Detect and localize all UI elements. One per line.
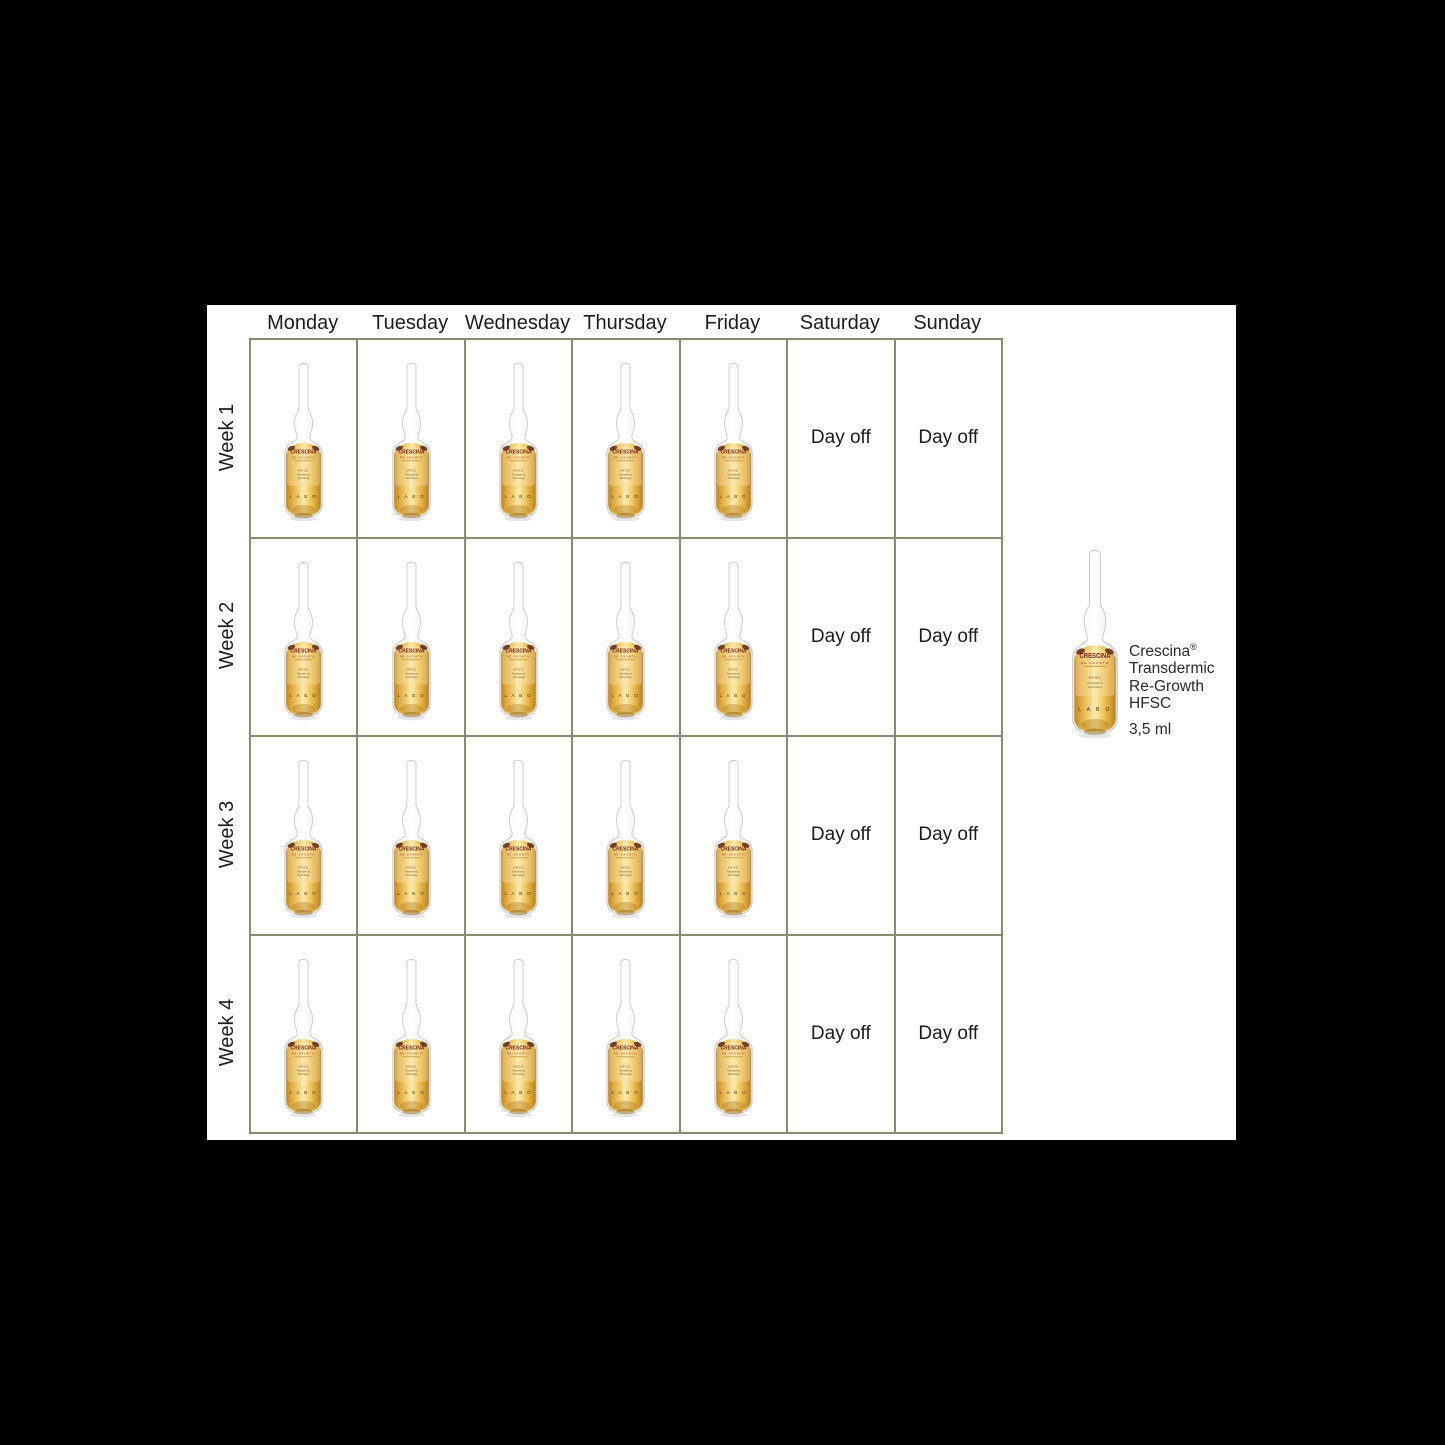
ampoule-icon bbox=[280, 561, 327, 721]
legend-product-name: Crescina® bbox=[1129, 639, 1215, 660]
ampoule-icon bbox=[710, 362, 757, 522]
week-2-label: Week 2 bbox=[217, 602, 240, 669]
day-header-saturday: Saturday bbox=[786, 309, 893, 337]
day-header-tuesday: Tuesday bbox=[356, 309, 463, 337]
week-4-label-cell: Week 4 bbox=[207, 934, 249, 1133]
day-off-label: Day off bbox=[918, 427, 978, 449]
cell-week1-tuesday bbox=[357, 339, 464, 538]
cell-week1-wednesday bbox=[465, 339, 572, 538]
week-1-label: Week 1 bbox=[217, 404, 240, 471]
week-1-label-cell: Week 1 bbox=[207, 338, 249, 537]
cell-week4-saturday: Day off bbox=[787, 935, 894, 1134]
cell-week3-saturday: Day off bbox=[787, 736, 894, 935]
treatment-schedule-infographic: CRESCINA RE-GROWTH HFSC Transdermic Tech… bbox=[207, 305, 1236, 1140]
week-3-label: Week 3 bbox=[217, 801, 240, 868]
legend-text-block: Crescina® Transdermic Re-Growth HFSC 3,5… bbox=[1129, 639, 1215, 739]
cell-week3-friday bbox=[680, 736, 787, 935]
cell-week1-monday bbox=[250, 339, 357, 538]
week-label-column: Week 1 Week 2 Week 3 Week 4 bbox=[207, 338, 249, 1132]
legend-ampoule-icon bbox=[1067, 549, 1123, 739]
day-header-friday: Friday bbox=[679, 309, 786, 337]
cell-week2-thursday bbox=[572, 538, 679, 737]
week-3-label-cell: Week 3 bbox=[207, 735, 249, 934]
ampoule-icon bbox=[495, 362, 542, 522]
ampoule-icon bbox=[602, 561, 649, 721]
day-off-label: Day off bbox=[811, 427, 871, 449]
cell-week4-wednesday bbox=[465, 935, 572, 1134]
ampoule-icon bbox=[280, 958, 327, 1118]
cell-week1-thursday bbox=[572, 339, 679, 538]
cell-week3-sunday: Day off bbox=[895, 736, 1002, 935]
cell-week1-sunday: Day off bbox=[895, 339, 1002, 538]
cell-week2-sunday: Day off bbox=[895, 538, 1002, 737]
cell-week1-saturday: Day off bbox=[787, 339, 894, 538]
ampoule-icon bbox=[710, 759, 757, 919]
legend-line-regrowth: Re-Growth bbox=[1129, 678, 1215, 695]
cell-week3-wednesday bbox=[465, 736, 572, 935]
day-header-sunday: Sunday bbox=[894, 309, 1001, 337]
cell-week3-monday bbox=[250, 736, 357, 935]
day-off-label: Day off bbox=[918, 824, 978, 846]
ampoule-icon bbox=[280, 362, 327, 522]
cell-week4-sunday: Day off bbox=[895, 935, 1002, 1134]
week-4-label: Week 4 bbox=[217, 999, 240, 1066]
cell-week1-friday bbox=[680, 339, 787, 538]
ampoule-icon bbox=[602, 362, 649, 522]
ampoule-icon bbox=[602, 759, 649, 919]
ampoule-icon bbox=[280, 759, 327, 919]
ampoule-icon bbox=[495, 958, 542, 1118]
cell-week2-saturday: Day off bbox=[787, 538, 894, 737]
day-off-label: Day off bbox=[918, 1023, 978, 1045]
letterboxed-stage: CRESCINA RE-GROWTH HFSC Transdermic Tech… bbox=[0, 0, 1445, 1445]
ampoule-icon bbox=[495, 759, 542, 919]
day-off-label: Day off bbox=[811, 626, 871, 648]
ampoule-icon bbox=[602, 958, 649, 1118]
day-off-label: Day off bbox=[811, 1023, 871, 1045]
cell-week4-monday bbox=[250, 935, 357, 1134]
day-header-monday: Monday bbox=[249, 309, 356, 337]
week-2-label-cell: Week 2 bbox=[207, 537, 249, 736]
day-off-label: Day off bbox=[918, 626, 978, 648]
registered-trademark-mark: ® bbox=[1190, 642, 1197, 652]
legend-name: Crescina bbox=[1129, 643, 1190, 660]
day-header-thursday: Thursday bbox=[571, 309, 678, 337]
day-header-wednesday: Wednesday bbox=[464, 309, 571, 337]
cell-week3-thursday bbox=[572, 736, 679, 935]
ampoule-icon bbox=[388, 561, 435, 721]
cell-week2-wednesday bbox=[465, 538, 572, 737]
ampoule-icon bbox=[388, 759, 435, 919]
cell-week2-tuesday bbox=[357, 538, 464, 737]
cell-week2-friday bbox=[680, 538, 787, 737]
ampoule-icon bbox=[710, 958, 757, 1118]
legend-line-hfsc: HFSC bbox=[1129, 695, 1215, 712]
cell-week4-tuesday bbox=[357, 935, 464, 1134]
day-off-label: Day off bbox=[811, 824, 871, 846]
cell-week3-tuesday bbox=[357, 736, 464, 935]
cell-week2-monday bbox=[250, 538, 357, 737]
cell-week4-friday bbox=[680, 935, 787, 1134]
legend-volume: 3,5 ml bbox=[1129, 721, 1215, 738]
cell-week4-thursday bbox=[572, 935, 679, 1134]
day-header-row: Monday Tuesday Wednesday Thursday Friday… bbox=[249, 309, 1001, 337]
schedule-grid: Day offDay offDay offDay offDay offDay o… bbox=[249, 338, 1003, 1134]
ampoule-icon bbox=[495, 561, 542, 721]
ampoule-icon bbox=[710, 561, 757, 721]
ampoule-icon bbox=[388, 362, 435, 522]
ampoule-icon bbox=[388, 958, 435, 1118]
legend-line-transdermic: Transdermic bbox=[1129, 660, 1215, 677]
